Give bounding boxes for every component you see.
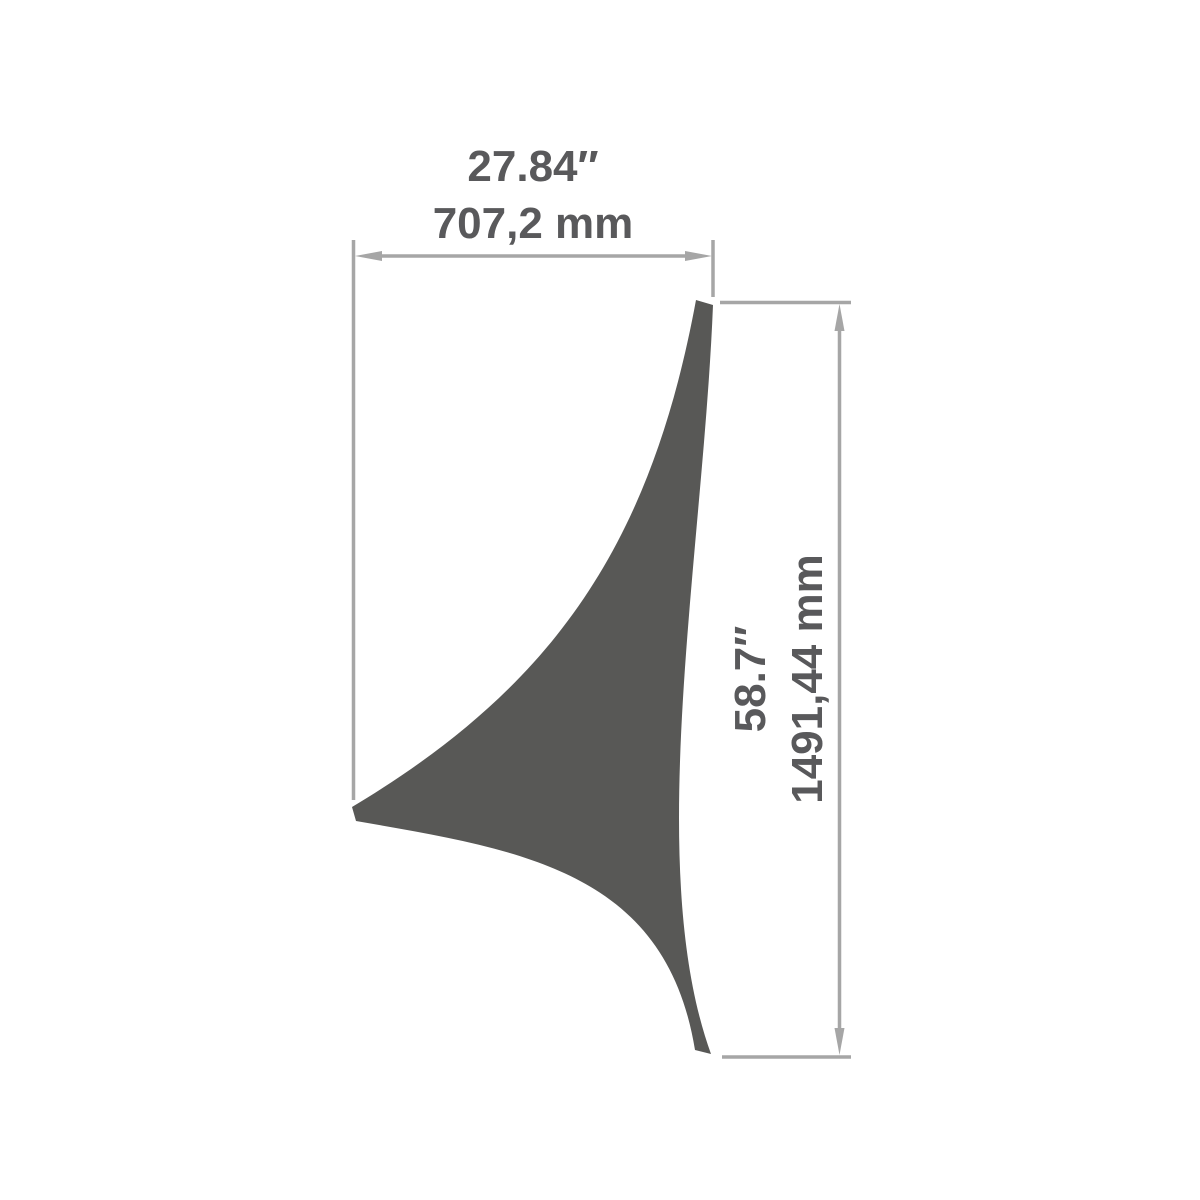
width-millimeters-label: 707,2 mm (273, 195, 793, 252)
shade-sail-dimension-diagram: 27.84″ 707,2 mm 58.7″ 1491,44 mm (0, 0, 1200, 1200)
width-inches-label: 27.84″ (273, 138, 793, 195)
arrow-left-icon (355, 251, 382, 261)
height-dimension-label: 58.7″ 1491,44 mm (722, 399, 836, 959)
shade-sail-shape (352, 300, 713, 1054)
arrow-up-icon (835, 304, 845, 331)
height-inches-label: 58.7″ (722, 399, 779, 959)
width-dimension-label: 27.84″ 707,2 mm (273, 138, 793, 252)
height-millimeters-label: 1491,44 mm (779, 399, 836, 959)
arrow-right-icon (685, 251, 712, 261)
arrow-down-icon (835, 1028, 845, 1055)
